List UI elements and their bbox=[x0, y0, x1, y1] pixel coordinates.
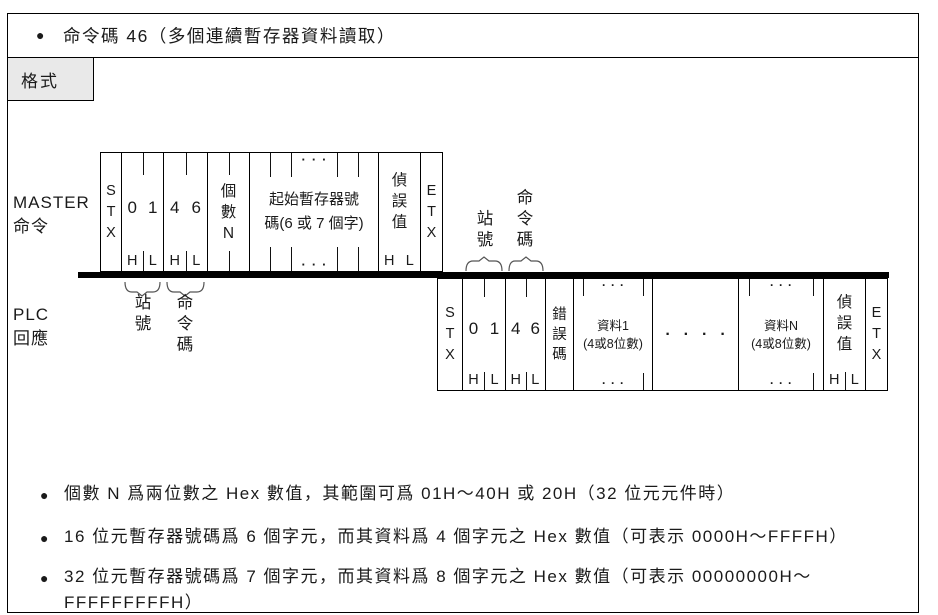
master-field-start-register: ··· ··· 起始暫存器號 碼(6 或 7 個字) bbox=[249, 152, 379, 272]
hl-l: L bbox=[186, 253, 208, 269]
format-tab: 格式 bbox=[7, 57, 94, 101]
digit-4: 4 bbox=[170, 198, 179, 218]
hl-h: H bbox=[506, 372, 526, 388]
hl-l: L bbox=[845, 372, 866, 388]
error-code-label: 錯 誤 碼 bbox=[552, 305, 567, 365]
hl-h: H bbox=[824, 372, 845, 388]
master-field-checksum: 偵 誤 值 H L bbox=[378, 152, 421, 272]
annotation-command-code: 命 令 碼 bbox=[174, 293, 196, 356]
dataN-label: 資料N (4或8位數) bbox=[751, 317, 811, 353]
plc-field-data1: ··· ··· 資料1 (4或8位數) bbox=[573, 278, 653, 391]
note-bullet-icon: ● bbox=[40, 487, 48, 503]
plc-field-error-code: 錯 誤 碼 bbox=[545, 278, 574, 391]
note-count-range: 個數 N 爲兩位數之 Hex 數值，其範圍可爲 01H～40H 或 20H（32… bbox=[64, 481, 918, 507]
hl-l: L bbox=[143, 253, 164, 269]
annotation-station-number: 站 號 bbox=[132, 293, 154, 335]
title-bullet-icon: ● bbox=[36, 27, 44, 43]
master-field-station: 0 1 H L bbox=[121, 152, 164, 272]
master-field-stx: S T X bbox=[100, 152, 122, 272]
plc-field-etx: E T X bbox=[865, 278, 888, 391]
note-bullet-icon: ● bbox=[40, 570, 48, 586]
brace-up bbox=[508, 256, 544, 272]
tick bbox=[229, 153, 230, 175]
annotation-station-number: 站 號 bbox=[474, 209, 496, 251]
digit-1: 1 bbox=[490, 319, 499, 339]
etx-label: E T X bbox=[872, 303, 882, 366]
stx-label: S T X bbox=[106, 181, 116, 244]
digit-0: 0 bbox=[128, 198, 137, 218]
digit-6: 6 bbox=[192, 198, 201, 218]
digit-4: 4 bbox=[511, 319, 520, 339]
ellipsis-dots: ··· bbox=[739, 281, 823, 290]
master-row-label: MASTER 命令 bbox=[13, 191, 90, 239]
master-field-command: 4 6 H L bbox=[163, 152, 208, 272]
master-field-etx: E T X bbox=[420, 152, 443, 272]
note-bullet-icon: ● bbox=[40, 530, 48, 546]
note-16bit-register: 16 位元暫存器號碼爲 6 個字元，而其資料爲 4 個字元之 Hex 數值（可表… bbox=[64, 524, 918, 550]
ellipsis-dots: ··· bbox=[250, 155, 378, 164]
hl-l: L bbox=[526, 372, 546, 388]
ellipsis-dots: ··· bbox=[574, 281, 652, 290]
ellipsis-dots: ···· bbox=[652, 326, 738, 344]
manual-page: ● 命令碼 46（多個連續暫存器資料讀取） 格式 MASTER 命令 PLC 回… bbox=[0, 0, 938, 615]
plc-field-command: 4 6 H L bbox=[505, 278, 546, 391]
ellipsis-dots: ··· bbox=[739, 379, 823, 388]
brace-up bbox=[465, 256, 503, 272]
ellipsis-dots: ··· bbox=[250, 260, 378, 269]
etx-label: E T X bbox=[427, 181, 437, 244]
checksum-label: 偵 誤 值 bbox=[392, 170, 408, 233]
annotation-command-code: 命 令 碼 bbox=[514, 188, 536, 251]
hl-h: H bbox=[463, 372, 484, 388]
title-divider bbox=[7, 57, 919, 58]
digit-0: 0 bbox=[469, 319, 478, 339]
start-register-label: 起始暫存器號 碼(6 或 7 個字) bbox=[264, 188, 363, 236]
plc-field-station: 0 1 H L bbox=[462, 278, 506, 391]
data1-label: 資料1 (4或8位數) bbox=[583, 317, 643, 353]
plc-row-label: PLC 回應 bbox=[13, 303, 49, 351]
master-field-count: 個 數 N bbox=[207, 152, 250, 272]
hl-l: L bbox=[400, 253, 421, 269]
digit-6: 6 bbox=[531, 319, 540, 339]
plc-field-stx: S T X bbox=[437, 278, 463, 391]
ellipsis-dots: ··· bbox=[574, 379, 652, 388]
plc-field-dataN: ··· ··· 資料N (4或8位數) bbox=[738, 278, 824, 391]
hl-l: L bbox=[484, 372, 505, 388]
stx-label: S T X bbox=[445, 303, 455, 366]
plc-field-data-gap: ···· bbox=[652, 278, 739, 391]
page-title: 命令碼 46（多個連續暫存器資料讀取） bbox=[63, 23, 396, 48]
format-tab-label: 格式 bbox=[21, 67, 59, 92]
hl-h: H bbox=[164, 253, 186, 269]
count-label: 個 數 N bbox=[221, 181, 237, 244]
checksum-label: 偵 誤 值 bbox=[837, 292, 853, 355]
hl-h: H bbox=[122, 253, 143, 269]
plc-field-checksum: 偵 誤 值 H L bbox=[823, 278, 866, 391]
hl-h: H bbox=[379, 253, 400, 269]
digit-1: 1 bbox=[148, 198, 157, 218]
tick bbox=[229, 251, 230, 271]
note-32bit-register: 32 位元暫存器號碼爲 7 個字元，而其資料爲 8 個字元之 Hex 數值（可表… bbox=[64, 564, 918, 615]
